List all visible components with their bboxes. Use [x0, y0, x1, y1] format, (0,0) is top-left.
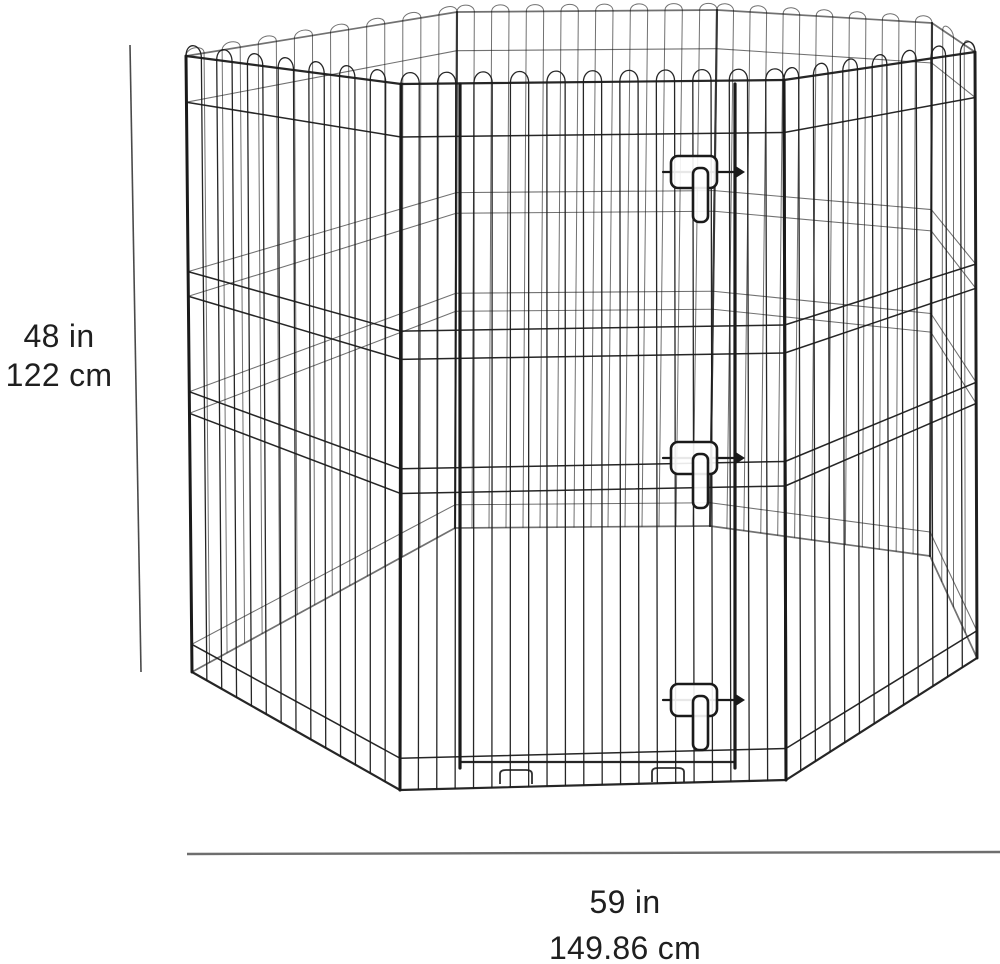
width-value-cm: 149.86 cm: [470, 930, 780, 964]
product-image: 48 in 122 cm 59 in 149.86 cm: [0, 0, 1000, 964]
width-value-inches: 59 in: [470, 884, 780, 921]
height-dimension-line: [130, 45, 141, 672]
height-dimension-label: 48 in 122 cm: [0, 318, 118, 394]
pen-panel-right-edge: [930, 23, 977, 658]
height-value-inches: 48 in: [0, 318, 118, 355]
pen-panel-back-right: [710, 4, 932, 556]
width-dimension-line: [187, 852, 1000, 854]
pen-panel-front-left: [186, 46, 401, 790]
pen-panel-back-left: [186, 7, 457, 672]
width-dimension-label: 59 in 149.86 cm: [470, 884, 780, 964]
exercise-pen-illustration: [0, 0, 1000, 964]
pen-foot-tab: [500, 770, 532, 784]
height-value-cm: 122 cm: [0, 357, 118, 394]
